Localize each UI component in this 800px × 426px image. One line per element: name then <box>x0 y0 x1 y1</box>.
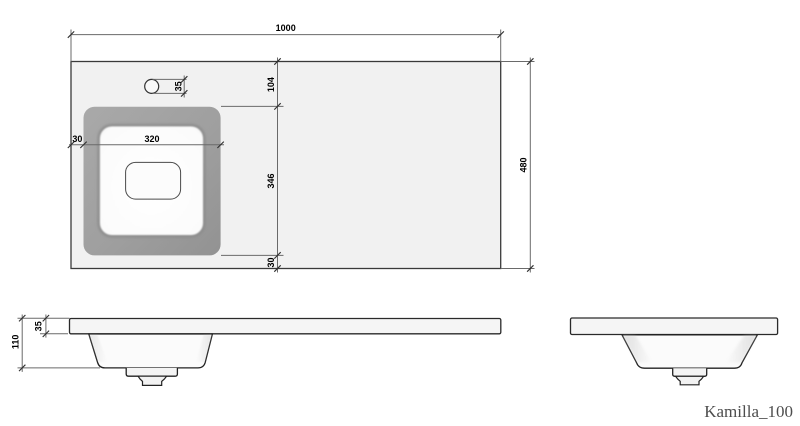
svg-text:30: 30 <box>266 257 276 267</box>
svg-text:320: 320 <box>144 134 159 144</box>
svg-text:35: 35 <box>34 321 44 331</box>
svg-text:110: 110 <box>11 335 21 350</box>
svg-text:30: 30 <box>72 134 82 144</box>
svg-text:480: 480 <box>518 157 528 172</box>
svg-text:35: 35 <box>174 81 184 91</box>
svg-text:346: 346 <box>266 173 276 188</box>
svg-text:104: 104 <box>266 77 276 92</box>
svg-text:Kamilla_100: Kamilla_100 <box>704 402 793 421</box>
svg-text:1000: 1000 <box>276 23 296 33</box>
